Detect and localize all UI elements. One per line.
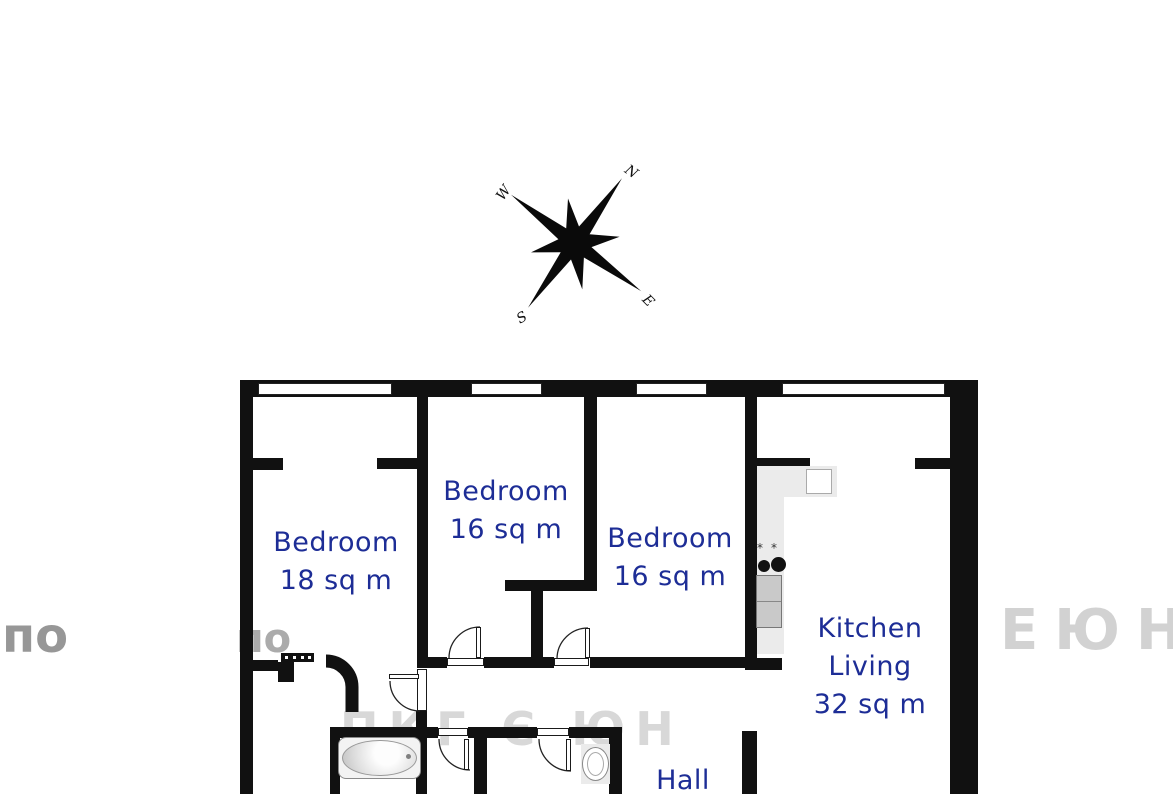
wc-top-wall-a bbox=[428, 727, 438, 738]
stove-burner-small bbox=[758, 560, 770, 572]
fridge-divider bbox=[757, 601, 781, 602]
compass-north-label: N bbox=[621, 161, 642, 182]
door-leaf-wc1 bbox=[464, 739, 469, 770]
door-leaf-bedroom2 bbox=[476, 627, 481, 658]
bedroom3-label: Bedroom 16 sq m bbox=[607, 520, 733, 596]
kitchen-line2: Living bbox=[814, 648, 927, 686]
grille-dot bbox=[301, 656, 304, 659]
compass-west-label: W bbox=[493, 181, 515, 203]
bedroom1-label: Bedroom 18 sq m bbox=[273, 524, 399, 600]
kitchen-sink bbox=[806, 469, 832, 494]
toilet-bowl-inner bbox=[587, 752, 604, 776]
door-sill-wc1 bbox=[438, 728, 468, 736]
wc-right-wall bbox=[609, 736, 622, 794]
wall-bedroom3-alcove-nub bbox=[505, 580, 597, 591]
watermark-right: ЕЮН bbox=[1000, 598, 1173, 663]
bedroom2-name: Bedroom bbox=[443, 473, 569, 511]
compass-rose: N W E S bbox=[485, 155, 675, 335]
outer-wall-left bbox=[240, 380, 253, 794]
wall-bedroom1-bedroom2 bbox=[417, 392, 428, 668]
wall-bedroom3-kitchen bbox=[745, 392, 757, 670]
niche-stub-left bbox=[252, 458, 283, 470]
bedroom1-name: Bedroom bbox=[273, 524, 399, 562]
bedroom3-name: Bedroom bbox=[607, 520, 733, 558]
grille-dot bbox=[293, 656, 296, 659]
window-bedroom3 bbox=[636, 383, 707, 395]
south-wall-kitchen-foot bbox=[745, 658, 782, 670]
wc-middle-wall bbox=[474, 736, 487, 794]
hall-kitchen-wall-lower bbox=[742, 731, 757, 794]
door-sill-bedroom3 bbox=[554, 658, 589, 666]
floorplan-canvas: по по ЕЮН ПКГ Є ЮН N W E S bbox=[0, 0, 1173, 794]
south-wall-seg1 bbox=[417, 657, 447, 668]
kitchen-stub-right bbox=[915, 458, 965, 469]
door-arc-bedroom3 bbox=[557, 628, 588, 659]
wall-bedroom2-bedroom3-lower bbox=[531, 580, 543, 668]
grille-dot bbox=[285, 656, 288, 659]
bedroom1-south-stub bbox=[252, 660, 278, 671]
hall-label: Hall bbox=[656, 762, 710, 794]
stove-mark: * bbox=[757, 541, 763, 555]
compass-south-label: S bbox=[514, 309, 530, 328]
kitchen-line1: Kitchen bbox=[814, 610, 927, 648]
kitchen-area: 32 sq m bbox=[814, 686, 927, 724]
window-kitchen bbox=[782, 383, 945, 395]
bedroom2-area: 16 sq m bbox=[443, 511, 569, 549]
south-wall-seg3 bbox=[590, 657, 745, 668]
bedroom2-label: Bedroom 16 sq m bbox=[443, 473, 569, 549]
south-wall-seg2 bbox=[484, 657, 554, 668]
door-leaf-wc2 bbox=[566, 739, 571, 771]
wall-bedroom2-bedroom3-upper bbox=[584, 392, 597, 589]
bedroom3-area: 16 sq m bbox=[607, 558, 733, 596]
hall-name: Hall bbox=[656, 762, 710, 794]
bathtub-drain bbox=[406, 754, 411, 759]
kitchen-living-label: Kitchen Living 32 sq m bbox=[814, 610, 927, 724]
stove-mark: * bbox=[771, 541, 777, 555]
compass-star-icon bbox=[511, 178, 641, 307]
door-sill-bedroom2 bbox=[447, 658, 484, 666]
bedroom1-south-block bbox=[278, 662, 294, 682]
bedroom1-area: 18 sq m bbox=[273, 562, 399, 600]
grille-dot bbox=[308, 656, 311, 659]
window-bedroom2 bbox=[471, 383, 542, 395]
door-leaf-hall-bedroom1 bbox=[389, 674, 419, 679]
door-leaf-bedroom3 bbox=[585, 628, 590, 658]
window-bedroom1 bbox=[258, 383, 392, 395]
compass-east-label: E bbox=[638, 291, 657, 310]
door-sill-wc2 bbox=[537, 728, 569, 736]
stove-burner-large bbox=[771, 557, 786, 572]
watermark-left: по bbox=[2, 608, 68, 664]
outer-wall-right bbox=[950, 380, 978, 794]
niche-stub-right bbox=[377, 458, 417, 469]
